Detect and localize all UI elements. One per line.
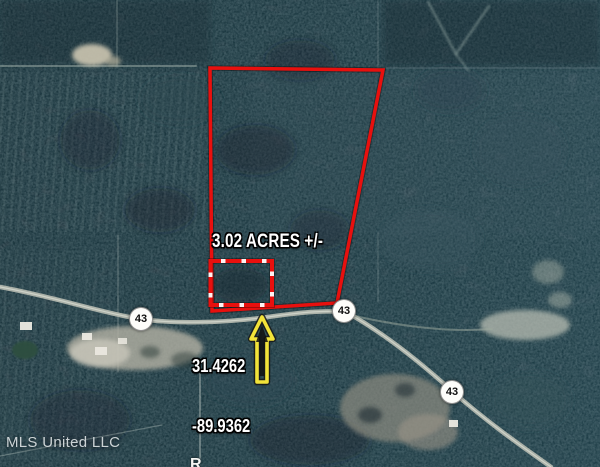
longitude-value: -89.9362 (192, 416, 250, 436)
coordinates-label: 31.4262 -89.9362 (192, 316, 250, 467)
location-arrow (251, 317, 273, 382)
young-pine-band (383, 0, 600, 66)
brokerage-watermark: MLS United LLC (6, 434, 120, 451)
highway-43-shield: 43 (332, 299, 356, 323)
highway-43-shield: 43 (440, 380, 464, 404)
acreage-label: 3.02 ACRES +/- (212, 231, 323, 253)
aerial-listing-map: 43 43 43 3.02 ACRES +/- 31.4262 -89.9362… (0, 0, 600, 467)
clipped-watermark-glyph: R (190, 456, 202, 467)
pond (12, 341, 38, 359)
latitude-value: 31.4262 (192, 356, 250, 376)
highway-43-shield: 43 (129, 307, 153, 331)
